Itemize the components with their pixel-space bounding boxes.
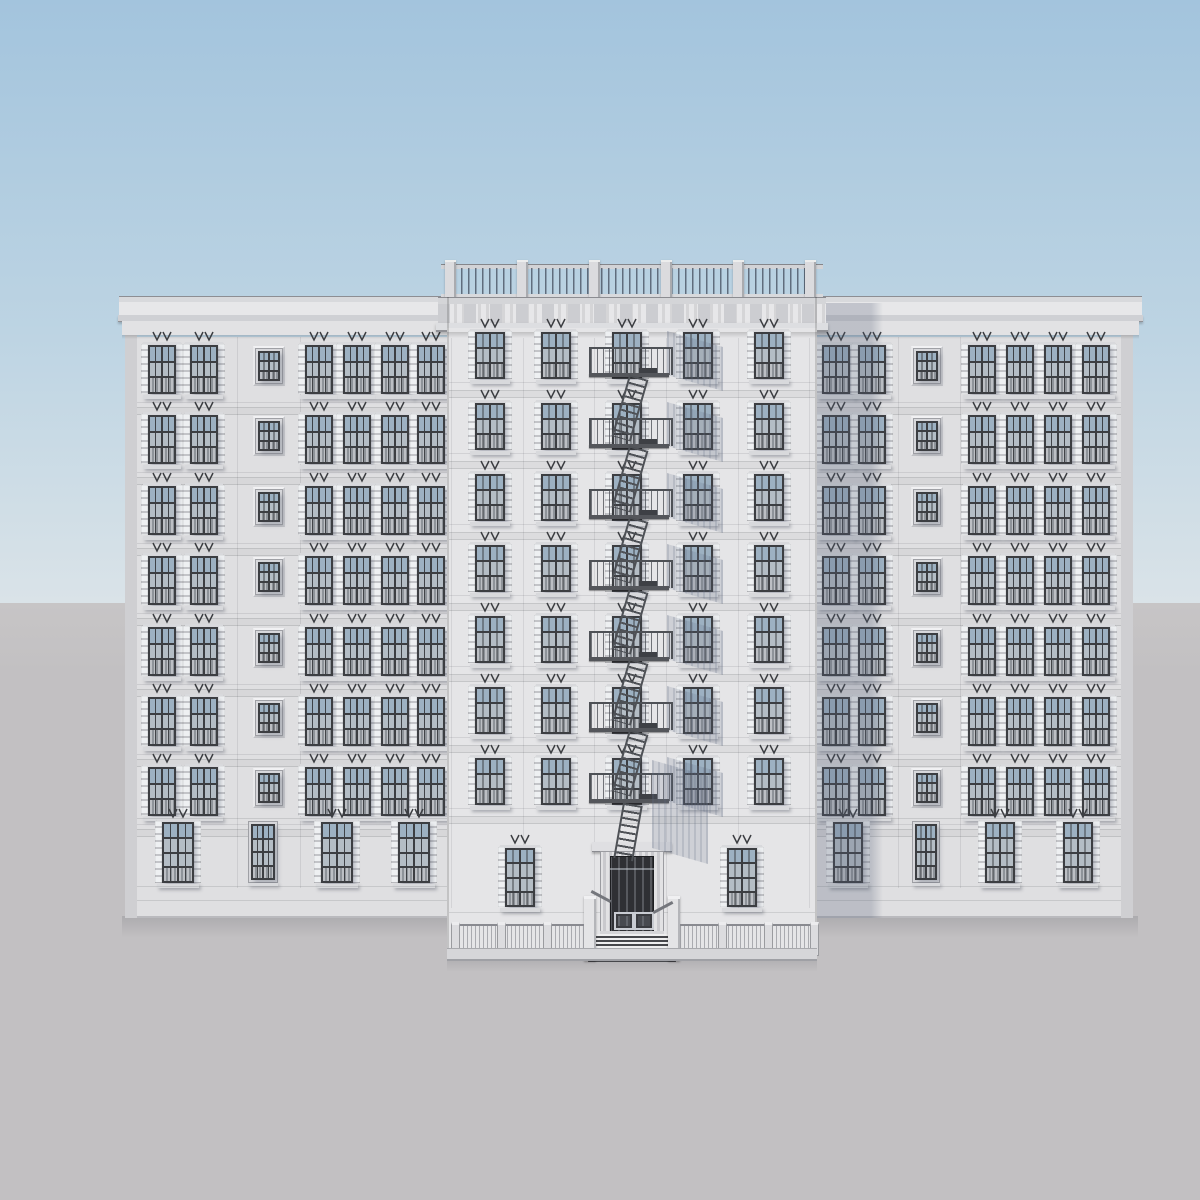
window-v-marks-icon [478, 744, 502, 755]
window-pane [477, 405, 489, 418]
window-pane [163, 448, 174, 462]
window-v-marks-icon [1008, 542, 1032, 553]
window-pane [987, 839, 999, 852]
window-pane [432, 699, 443, 713]
window-quoins-right [886, 344, 893, 394]
window-pane [918, 362, 926, 369]
window-pane [756, 760, 768, 773]
window-pane [205, 699, 216, 713]
window-pane [358, 660, 369, 674]
window-quoins-right [176, 696, 183, 746]
window-pane [163, 519, 174, 533]
window-sill [338, 747, 376, 751]
window-quoins-left [141, 344, 148, 394]
window-frame [343, 697, 371, 746]
window-pane [970, 519, 981, 533]
window-pane [320, 417, 331, 431]
window-pane [1059, 574, 1070, 588]
window-quoins-left [298, 555, 305, 605]
roof-balustrade-balusters [447, 268, 817, 294]
window-pane [345, 519, 356, 533]
window-pane [1046, 699, 1057, 713]
window-pane [264, 853, 273, 865]
window [468, 744, 512, 810]
window-v-marks-icon [544, 673, 568, 684]
window-pane [1008, 574, 1019, 588]
window-pane [770, 405, 782, 418]
window-pane [1008, 769, 1019, 783]
window-quoins-left [410, 414, 417, 464]
fire-escape-railing [589, 702, 673, 730]
window [1037, 613, 1079, 681]
window-pane [1046, 645, 1057, 659]
window-pane [383, 730, 394, 744]
window-quoins-left [298, 485, 305, 535]
window-v-marks-icon [757, 389, 781, 400]
window-frame [916, 351, 938, 381]
window-quoins-right [218, 555, 225, 605]
window-pane [1079, 854, 1091, 867]
window-frame [541, 687, 571, 734]
window-pane [491, 562, 503, 575]
window-pane [270, 362, 278, 369]
window-pane [150, 699, 161, 713]
window-pane [260, 372, 268, 379]
window-pane [396, 574, 407, 588]
window-v-marks-icon [1084, 683, 1108, 694]
window-pane [270, 494, 278, 501]
window-pane [270, 423, 278, 430]
window-pane [320, 645, 331, 659]
window-v-marks-icon [1084, 753, 1108, 764]
window-pane [507, 864, 519, 876]
window-pane [323, 824, 336, 837]
window-pane [1008, 363, 1019, 377]
window-pane [419, 488, 430, 502]
window-pane [338, 868, 351, 881]
window-quoins-right [505, 402, 512, 450]
window-pane [477, 760, 489, 773]
window [336, 401, 378, 469]
window-quoins-left [374, 485, 381, 535]
window-frame [305, 415, 333, 464]
window-pane [928, 513, 936, 520]
window-v-marks-icon [383, 683, 407, 694]
window-v-marks-icon [383, 331, 407, 342]
window [141, 331, 183, 399]
window-pane [419, 715, 430, 729]
window-pane [419, 417, 430, 431]
window-pane [543, 790, 555, 803]
window-sill [376, 395, 414, 399]
door-hardware-panel [634, 912, 654, 930]
window [410, 401, 452, 469]
window-pane [1021, 730, 1032, 744]
window-small [911, 628, 943, 670]
window-pane [396, 785, 407, 799]
window-quoins-right [194, 821, 201, 883]
window-pane [396, 433, 407, 447]
window-pane [270, 635, 278, 642]
window-frame [258, 703, 280, 733]
window-quoins-left [1037, 485, 1044, 535]
window-pane [477, 562, 489, 575]
window-pane [756, 435, 768, 448]
left-wing-base-edge [137, 916, 447, 918]
window-pane [1097, 589, 1108, 603]
window-pane [1065, 868, 1077, 881]
window-frame [381, 627, 409, 676]
window [999, 331, 1041, 399]
window-pane [1059, 347, 1070, 361]
window-pane [192, 558, 203, 572]
window-pane [1046, 378, 1057, 392]
left-wing-side-face [125, 312, 137, 918]
window-pane [192, 660, 203, 674]
window-pane [1084, 363, 1095, 377]
window-pane [1021, 504, 1032, 518]
window-pane [1059, 769, 1070, 783]
tower-cast-shadow [817, 303, 883, 918]
window-pane [1046, 363, 1057, 377]
window-quoins-left [1075, 555, 1082, 605]
window-sill [185, 536, 223, 540]
window-pane [192, 730, 203, 744]
window-pane [557, 577, 569, 590]
window-pane [358, 417, 369, 431]
window-quoins-left [298, 696, 305, 746]
window-pane [338, 854, 351, 867]
window-pane [1065, 824, 1077, 837]
window-pane [307, 448, 318, 462]
window-v-marks-icon [1008, 472, 1032, 483]
window-frame [968, 697, 996, 746]
window-pane [345, 488, 356, 502]
window-frame [190, 627, 218, 676]
window [534, 673, 578, 739]
window-pane [477, 577, 489, 590]
window-pane [756, 476, 768, 489]
window-pane [260, 564, 268, 571]
window-pane [1059, 378, 1070, 392]
window [534, 318, 578, 384]
window-pane [163, 504, 174, 518]
window-pane [150, 448, 161, 462]
window-pane [970, 347, 981, 361]
window-pane [205, 800, 216, 814]
window-pane [729, 850, 741, 862]
window-quoins-left [747, 615, 754, 663]
window-pane [1097, 488, 1108, 502]
window [410, 613, 452, 681]
window-pane [543, 349, 555, 362]
window-sill [1039, 465, 1077, 469]
window-pane [1008, 378, 1019, 392]
door-transom-bar [610, 868, 654, 870]
window-quoins-left [468, 473, 475, 521]
window-sill [300, 677, 338, 681]
window-sill [536, 593, 576, 597]
window-pane [205, 660, 216, 674]
window-v-marks-icon [544, 602, 568, 613]
window-pane [557, 334, 569, 347]
window-v-marks-icon [988, 808, 1012, 819]
window-pane [1084, 699, 1095, 713]
window-quoins-right [571, 686, 578, 734]
window [410, 542, 452, 610]
window-v-marks-icon [150, 542, 174, 553]
window-pane [543, 618, 555, 631]
window-quoins-right [505, 331, 512, 379]
window-pane [320, 769, 331, 783]
window-pane [396, 363, 407, 377]
window-frame [1006, 415, 1034, 464]
window-quoins-left [410, 555, 417, 605]
window-pane [1079, 839, 1091, 852]
window-v-marks-icon [307, 401, 331, 412]
window-frame [1082, 627, 1110, 676]
window-quoins-left [961, 414, 968, 464]
window-pane [543, 364, 555, 377]
window-sill [143, 606, 181, 610]
window-pane [419, 589, 430, 603]
window-pane [307, 433, 318, 447]
window-v-marks-icon [1084, 401, 1108, 412]
window [410, 331, 452, 399]
window-pane [383, 504, 394, 518]
window-sill [412, 536, 450, 540]
window [298, 683, 340, 751]
window-quoins-right [218, 414, 225, 464]
window-sill [470, 735, 510, 739]
window-quoins-right [571, 331, 578, 379]
window-pane [1008, 519, 1019, 533]
window-pane [770, 435, 782, 448]
window-pane [756, 562, 768, 575]
window-pane [1084, 488, 1095, 502]
window-pane [150, 433, 161, 447]
window-pane [358, 488, 369, 502]
window-pane [983, 645, 994, 659]
window-pane [260, 583, 268, 590]
window-quoins-left [468, 615, 475, 663]
window-pane [345, 433, 356, 447]
window-pane [477, 790, 489, 803]
window-sill [143, 395, 181, 399]
window-quoins-left [410, 485, 417, 535]
window [298, 613, 340, 681]
window-quoins-left [468, 686, 475, 734]
window [747, 673, 791, 739]
window [999, 542, 1041, 610]
window-quoins-left [336, 696, 343, 746]
window [183, 542, 225, 610]
window-pane [164, 839, 177, 852]
window-pane [260, 494, 268, 501]
window-quoins-left [999, 626, 1006, 676]
window-pane [1097, 715, 1108, 729]
window-pane [432, 378, 443, 392]
window-pane [918, 432, 926, 439]
window-pane [1046, 448, 1057, 462]
window-quoins-right [571, 473, 578, 521]
window-v-marks-icon [1008, 753, 1032, 764]
window-pane [307, 660, 318, 674]
window-quoins-left [314, 821, 321, 883]
window-pane [205, 558, 216, 572]
window-pane [396, 645, 407, 659]
window [961, 401, 1003, 469]
window-pane [358, 629, 369, 643]
window-pane [358, 347, 369, 361]
window [314, 808, 360, 888]
window-pane [557, 405, 569, 418]
window [141, 542, 183, 610]
window-pane [1097, 417, 1108, 431]
window-pane [1059, 448, 1070, 462]
window-sill [470, 806, 510, 810]
window-quoins-left [978, 821, 985, 883]
window-pane [1046, 417, 1057, 431]
window-pane [396, 589, 407, 603]
window-pane [419, 378, 430, 392]
window-pane [358, 363, 369, 377]
window [961, 331, 1003, 399]
window-quoins-left [498, 847, 505, 907]
window-pane [264, 826, 273, 838]
window [961, 542, 1003, 610]
window-pane [396, 660, 407, 674]
window-pane [1021, 699, 1032, 713]
window-frame [381, 345, 409, 394]
window-pane [477, 547, 489, 560]
window-pane [164, 868, 177, 881]
window-pane [1084, 558, 1095, 572]
window-quoins-left [1037, 766, 1044, 816]
window-v-marks-icon [1046, 753, 1070, 764]
window-pane [419, 730, 430, 744]
window-pane [970, 660, 981, 674]
window-pane [396, 730, 407, 744]
window-pane [1059, 785, 1070, 799]
window-pane [918, 583, 926, 590]
window-quoins-left [141, 485, 148, 535]
window-sill [300, 395, 338, 399]
window-frame [475, 474, 505, 521]
window-sill [1039, 395, 1077, 399]
window-quoins-left [183, 555, 190, 605]
window [1037, 472, 1079, 540]
window-pane [320, 378, 331, 392]
window-quoins-right [505, 757, 512, 805]
window-pane [163, 699, 174, 713]
window-pane [557, 562, 569, 575]
window-v-marks-icon [686, 389, 710, 400]
window-quoins-left [999, 485, 1006, 535]
window-pane [1021, 589, 1032, 603]
window-quoins-left [999, 555, 1006, 605]
window-pane [521, 893, 533, 905]
window-pane [1097, 519, 1108, 533]
window-v-marks-icon [970, 542, 994, 553]
window-pane [345, 645, 356, 659]
window [468, 673, 512, 739]
window-frame [1063, 822, 1093, 883]
window-pane [192, 378, 203, 392]
window-pane [323, 868, 336, 881]
window-sill [376, 606, 414, 610]
window-frame [1044, 697, 1072, 746]
window-pane [150, 589, 161, 603]
window-quoins-left [747, 402, 754, 450]
window-sill [749, 451, 789, 455]
window-pane [543, 506, 555, 519]
window-quoins-left [374, 555, 381, 605]
window-quoins-right [571, 544, 578, 592]
window-pane [270, 644, 278, 651]
window-v-marks-icon [970, 753, 994, 764]
window-sill [536, 451, 576, 455]
window-quoins-left [1056, 821, 1063, 883]
window-pane [415, 868, 428, 881]
window-frame [343, 486, 371, 535]
window-small [253, 416, 285, 458]
window-frame [1044, 345, 1072, 394]
window-pane [1097, 504, 1108, 518]
window-pane [432, 785, 443, 799]
window-pane [419, 785, 430, 799]
window-pane [396, 448, 407, 462]
window-frame [381, 486, 409, 535]
window-quoins-right [176, 485, 183, 535]
window-frame [148, 627, 176, 676]
window-v-marks-icon [478, 673, 502, 684]
window-quoins-left [961, 626, 968, 676]
window-small [253, 768, 285, 810]
window-v-marks-icon [383, 401, 407, 412]
window-pane [1097, 378, 1108, 392]
window-pane [543, 405, 555, 418]
window-pane [983, 730, 994, 744]
window-sill [143, 536, 181, 540]
window-sill [338, 395, 376, 399]
window [1075, 613, 1117, 681]
window-pane [432, 715, 443, 729]
window-pane [543, 577, 555, 590]
window-pane [1046, 715, 1057, 729]
window-frame [321, 822, 353, 883]
window-pane [491, 435, 503, 448]
window-quoins-right [505, 615, 512, 663]
window-quoins-left [747, 473, 754, 521]
window-pane [419, 699, 430, 713]
window-small [911, 698, 943, 740]
window-pane [614, 334, 626, 347]
window-pane [543, 633, 555, 646]
window-pane [260, 423, 268, 430]
window-pane [307, 769, 318, 783]
window-pane [970, 363, 981, 377]
window-small [253, 628, 285, 670]
window-pane [260, 724, 268, 731]
window-quoins-right [784, 615, 791, 663]
window-pane [557, 476, 569, 489]
window-quoins-left [374, 626, 381, 676]
window-sill [1077, 747, 1115, 751]
window-quoins-left [534, 757, 541, 805]
window-frame [475, 758, 505, 805]
window-quoins-left [961, 344, 968, 394]
